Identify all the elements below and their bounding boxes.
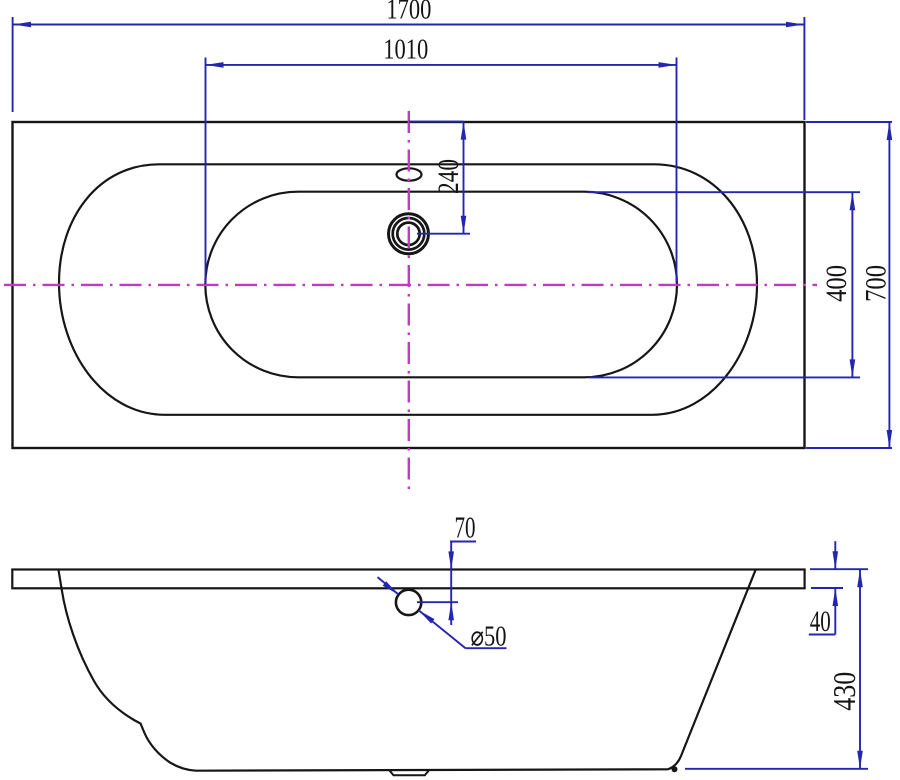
svg-text:400: 400 bbox=[820, 265, 853, 302]
svg-text:1700: 1700 bbox=[386, 0, 431, 26]
svg-text:700: 700 bbox=[860, 265, 893, 302]
svg-text:430: 430 bbox=[826, 672, 862, 711]
svg-text:40: 40 bbox=[810, 605, 831, 638]
svg-text:240: 240 bbox=[432, 159, 465, 194]
svg-text:70: 70 bbox=[455, 510, 476, 545]
svg-text:1010: 1010 bbox=[383, 35, 428, 66]
svg-text:⌀50: ⌀50 bbox=[471, 622, 507, 653]
